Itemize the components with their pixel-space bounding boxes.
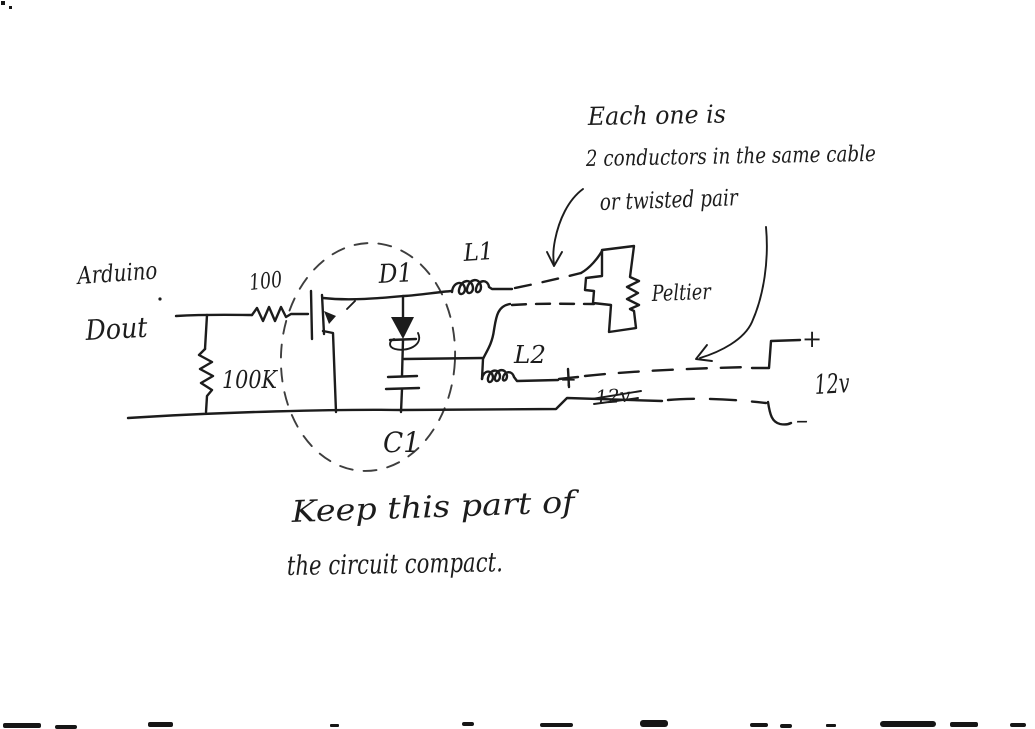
cable-note-line1: Each one is (587, 100, 726, 131)
mosfet (311, 291, 452, 412)
pulldown-zigzag (199, 349, 213, 412)
capacitor-label: C1 (383, 426, 420, 459)
mosfet-drain-wire (323, 291, 452, 299)
circuit-sketch: Each one is 2 conductors in the same cab… (0, 0, 1035, 729)
inductor2-label: L2 (513, 341, 546, 369)
mosfet-source-wire (323, 331, 336, 412)
cable1-upper-dashed (515, 273, 581, 288)
scan-artifact-top-left (1, 1, 12, 9)
scan-artifact-bottom-edge (3, 720, 1026, 729)
cap-plate-top (388, 376, 417, 377)
compact-ellipse (275, 239, 461, 476)
cable-note-line2: 2 conductors in the same cable (585, 142, 876, 172)
supply-voltage-label: 12v (814, 368, 851, 401)
inductor-l2 (482, 370, 558, 382)
diode-label: D1 (377, 258, 413, 290)
diode-triangle (391, 317, 414, 339)
flyback-diode (390, 296, 419, 376)
pulldown-resistor (199, 315, 213, 412)
peltier-load (585, 246, 639, 332)
cap-ground-wire (401, 389, 402, 412)
diode-cathode-wire (402, 340, 403, 376)
supply-12v (752, 340, 800, 424)
cable-note-arrow-1 (553, 189, 583, 264)
inductor-l1 (452, 280, 512, 294)
gate-resistor-zigzag (252, 307, 308, 321)
cable-note: Each one is 2 conductors in the same cab… (585, 100, 876, 216)
mosfet-arrow (324, 311, 336, 324)
l1-coil (452, 280, 512, 294)
supply-minus-label: – (796, 406, 808, 434)
compact-note-line1: Keep this part of (290, 485, 581, 530)
input-wire (176, 315, 252, 316)
node-wire (404, 358, 483, 359)
cable1-upper-hook (581, 251, 602, 273)
inductor1-label: L1 (462, 237, 495, 267)
cable2-lower-dashed (668, 399, 766, 403)
scanned-sketch-page: Each one is 2 conductors in the same cab… (0, 0, 1035, 729)
supply-labels: + + 12v – 12v (560, 325, 850, 434)
cable-note-arrow-2-head (696, 345, 712, 361)
cable1-return-wire (482, 304, 510, 379)
cable2-upper-dashed (585, 367, 752, 376)
mosfet-gate-bar (311, 291, 312, 339)
arduino-label-line1: Arduino (75, 256, 158, 290)
peltier-label: Peltier (651, 280, 713, 307)
gate-resistor-label: 100 (248, 268, 283, 296)
capacitor (386, 376, 419, 412)
compact-note: Keep this part of the circuit compact. (287, 485, 581, 582)
ground-rail (128, 398, 662, 418)
compact-note-line2: the circuit compact. (287, 547, 504, 582)
supply-plus-label: + (802, 325, 822, 353)
cable-plus-label: + (560, 367, 577, 391)
pulldown-resistor-label: 100K (222, 366, 279, 394)
supply-minus-hook (768, 402, 791, 424)
pen-tick (347, 301, 355, 309)
cable-note-arrow-1-head (547, 252, 562, 266)
cable-note-line3: or twisted pair (599, 185, 739, 216)
mosfet-channel-bar (322, 295, 324, 334)
supply-plus-step (752, 340, 800, 368)
peltier-outline (585, 246, 639, 332)
pulldown-wire-top (205, 315, 207, 349)
cable1-lower-dashed (512, 304, 594, 305)
pen-dot (158, 297, 161, 300)
arduino-input (158, 297, 308, 321)
arduino-label-line2: Dout (84, 311, 149, 347)
l2-coil (482, 370, 558, 382)
crossed-out-12v-label: 12v (595, 385, 632, 409)
